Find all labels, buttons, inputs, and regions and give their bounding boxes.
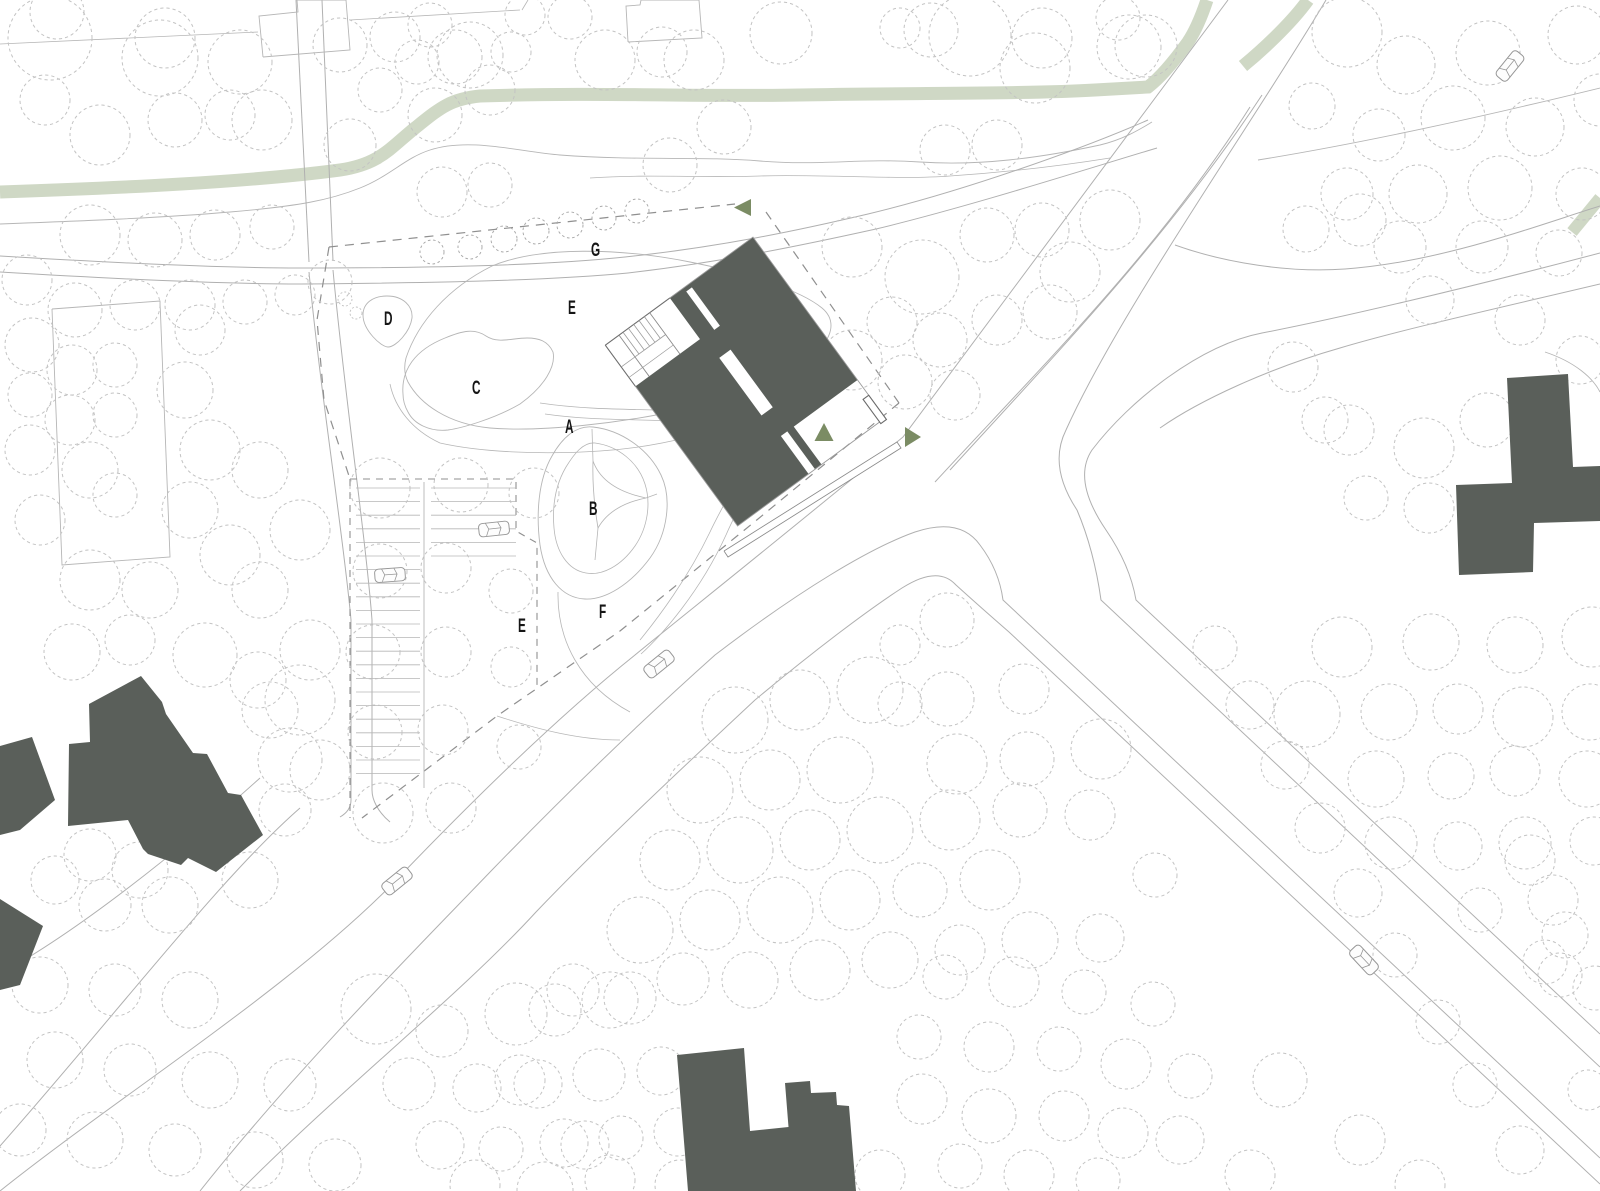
svg-text:F: F <box>599 602 606 622</box>
svg-text:A: A <box>565 417 574 437</box>
svg-text:E: E <box>568 298 576 318</box>
svg-text:D: D <box>384 309 393 329</box>
svg-text:E: E <box>518 616 526 636</box>
svg-text:G: G <box>591 240 600 260</box>
svg-text:C: C <box>472 378 481 398</box>
svg-text:B: B <box>589 499 598 519</box>
